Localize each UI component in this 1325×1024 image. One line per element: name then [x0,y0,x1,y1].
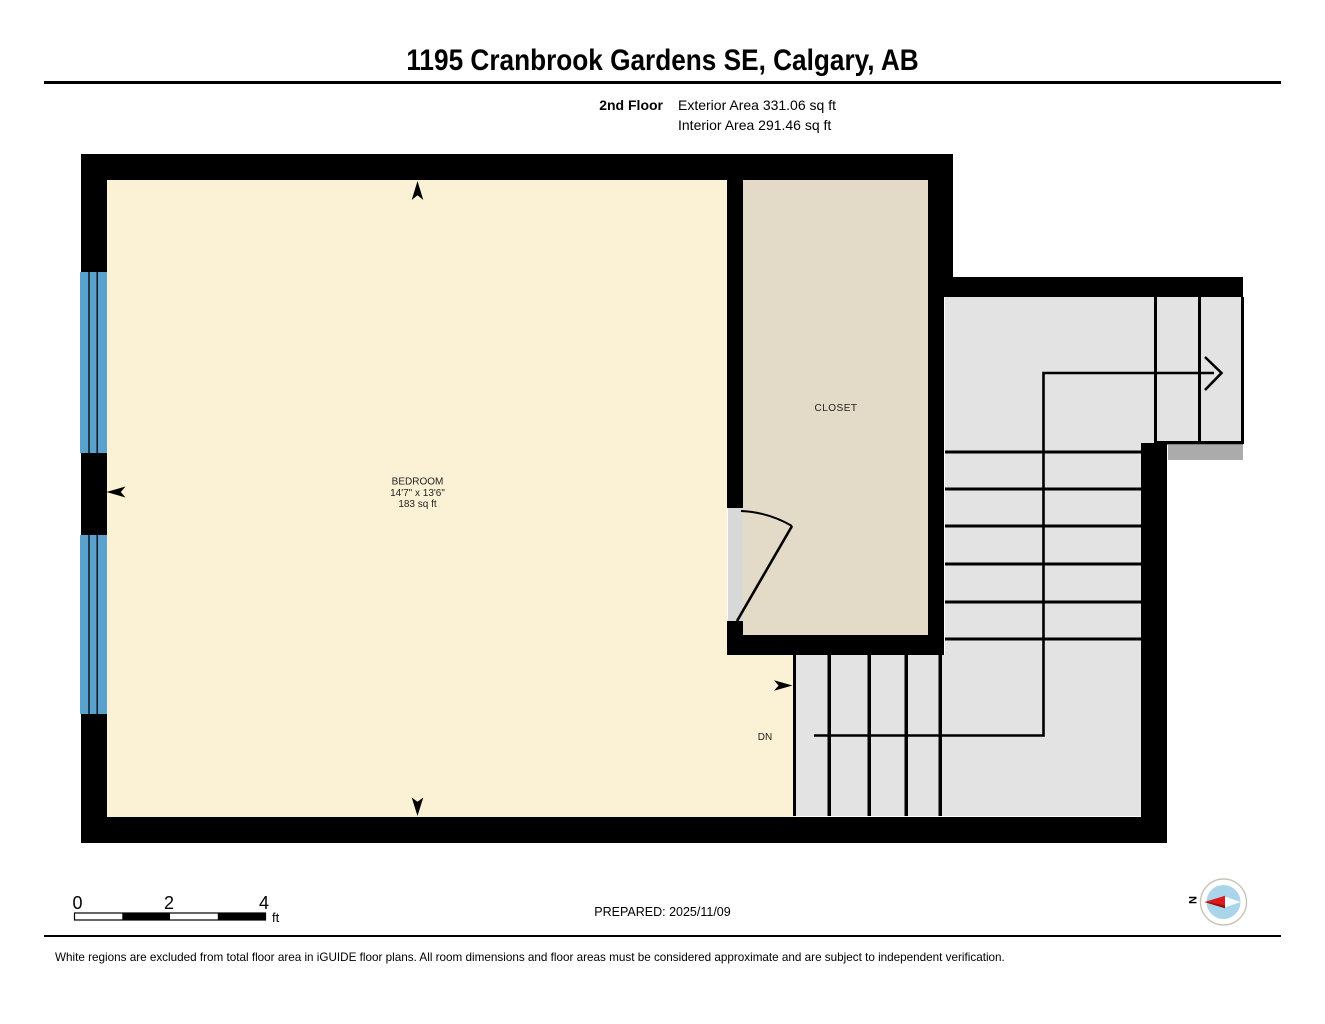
svg-text:N: N [1188,896,1200,904]
svg-text:183 sq ft: 183 sq ft [398,499,437,510]
svg-text:14'7" x 13'6": 14'7" x 13'6" [390,488,445,499]
svg-text:BEDROOM: BEDROOM [392,477,444,488]
svg-text:CLOSET: CLOSET [814,403,857,414]
svg-text:DN: DN [758,732,772,743]
